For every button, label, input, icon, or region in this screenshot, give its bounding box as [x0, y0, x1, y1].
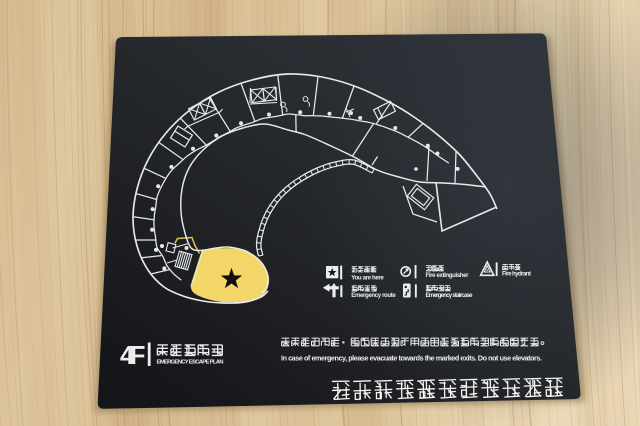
svg-text:Emergency staircase: Emergency staircase [426, 292, 474, 299]
svg-text:4F: 4F [120, 342, 146, 370]
svg-text:Emergency route: Emergency route [351, 292, 396, 299]
svg-text:In case of emergency, please e: In case of emergency, please evacuate to… [281, 354, 542, 363]
svg-text:EMERGENCY ESCAPE PLAN: EMERGENCY ESCAPE PLAN [157, 360, 224, 366]
svg-text:You are here: You are here [351, 275, 384, 282]
svg-text:Fire hydrant: Fire hydrant [502, 271, 531, 278]
svg-text:Fire extinguisher: Fire extinguisher [426, 272, 470, 279]
